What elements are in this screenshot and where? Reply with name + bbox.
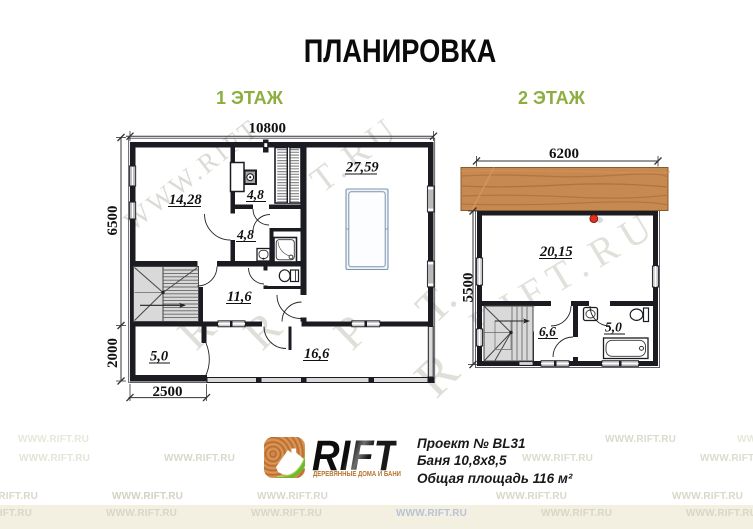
svg-text:2500: 2500 <box>153 384 183 400</box>
svg-text:4,8: 4,8 <box>246 187 264 202</box>
svg-text:16,6: 16,6 <box>304 346 330 362</box>
svg-text:5,0: 5,0 <box>605 320 622 335</box>
svg-text:5500: 5500 <box>461 273 477 303</box>
svg-text:11,6: 11,6 <box>227 289 252 305</box>
svg-text:R: R <box>403 340 471 408</box>
svg-text:10800: 10800 <box>249 121 287 137</box>
svg-text:Т.RU: Т.RU <box>303 107 408 200</box>
svg-text:6200: 6200 <box>549 146 579 162</box>
svg-text:27,59: 27,59 <box>345 160 379 176</box>
svg-text:4,8: 4,8 <box>236 227 254 242</box>
svg-text:14,28: 14,28 <box>169 192 202 208</box>
svg-text:20,15: 20,15 <box>539 244 573 260</box>
svg-text:Р: Р <box>324 305 378 359</box>
svg-text:2000: 2000 <box>105 338 121 368</box>
svg-text:5,0: 5,0 <box>150 349 168 365</box>
svg-text:6500: 6500 <box>105 206 121 236</box>
svg-text:6,6: 6,6 <box>539 324 556 339</box>
